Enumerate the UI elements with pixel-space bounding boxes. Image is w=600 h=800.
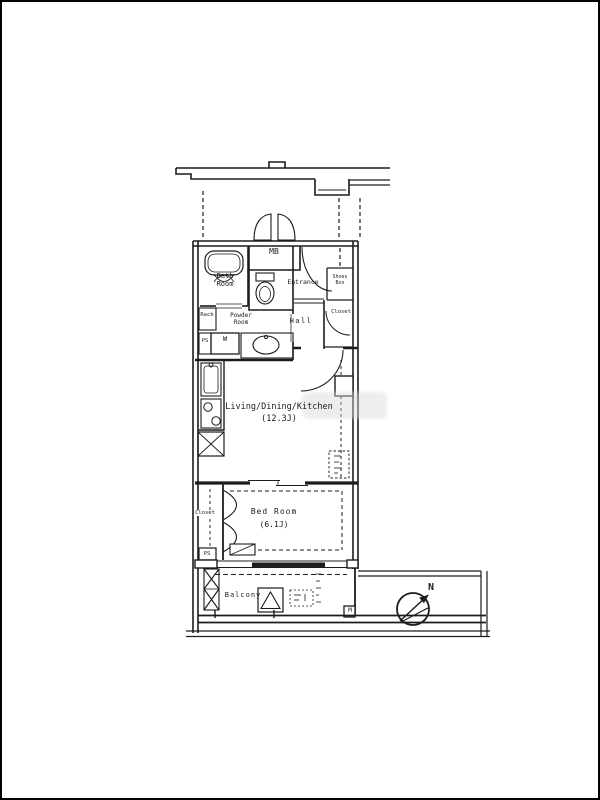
powder-room-label: Powder Room	[230, 313, 252, 326]
toilet	[256, 273, 274, 304]
bedroom-closet-label: Closet	[194, 510, 216, 516]
mb-label: MB	[269, 248, 279, 257]
washbasin	[241, 333, 293, 358]
hall-partition-walls	[291, 246, 324, 360]
evacuation-hatch	[258, 588, 283, 612]
floorplan-linework	[2, 2, 600, 800]
entrance-label: Entrance	[287, 279, 318, 286]
ac-unit-outline	[329, 451, 349, 478]
bedroom-size-label: (6.1J)	[260, 521, 289, 530]
bedroom-label: Bed Room	[251, 508, 298, 517]
neighbor-walls	[358, 571, 487, 636]
meter-box-doors	[254, 214, 295, 240]
balcony-bottom-wall	[198, 616, 486, 623]
balcony-label: Balcony	[225, 592, 262, 600]
north-compass	[397, 593, 429, 625]
sliding-window	[217, 561, 347, 568]
outer-ground-line	[186, 631, 490, 637]
closet-folding-doors	[223, 490, 237, 552]
ps-lower-label: PS	[204, 551, 211, 557]
hatch-annotation	[290, 590, 313, 606]
ldk-label: Living/Dining/Kitchen	[225, 403, 332, 412]
ldk-size-label: (12.3J)	[261, 415, 297, 424]
hall-label: Hall	[290, 318, 313, 326]
rack-label: Rack	[200, 312, 213, 318]
meter-label: M	[348, 608, 352, 615]
kitchen-sink	[201, 363, 221, 396]
kitchen-stove	[201, 399, 221, 428]
floorplan-image: MB Bath Room Entrance Shoes Box Hall Clo…	[0, 0, 600, 800]
bedroom-counter	[230, 544, 255, 555]
partition-annotation	[316, 574, 321, 602]
pipe-shaft-box	[204, 569, 219, 610]
north-label: N	[428, 582, 434, 593]
corridor-wall	[176, 162, 390, 195]
hall-closet-label: Closet	[331, 309, 351, 315]
shoes-box-label: Shoes Box	[332, 275, 347, 286]
ps-upper-label: PS	[202, 338, 209, 344]
sliding-door	[248, 481, 308, 486]
refrigerator-space	[198, 432, 224, 456]
boundary-dashlines	[203, 191, 360, 266]
washer-label: W	[223, 336, 227, 344]
bathroom-label: Bath Room	[217, 273, 234, 288]
